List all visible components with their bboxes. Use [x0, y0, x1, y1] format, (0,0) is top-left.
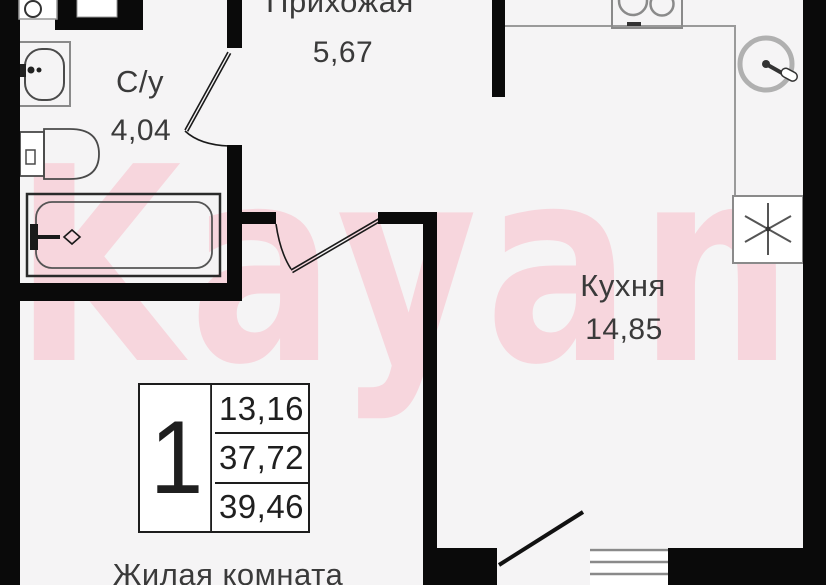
room-area-bathroom: 4,04 — [111, 114, 171, 148]
washing-machine-icon — [19, 0, 57, 19]
room-label-kitchen: Кухня — [580, 268, 665, 304]
bathtub-icon — [27, 194, 220, 276]
wall-segment — [240, 212, 276, 224]
stove-icon — [612, 0, 682, 28]
kitchen-sink-icon — [740, 38, 799, 90]
door-swing-icon — [276, 218, 382, 273]
wall-segment — [423, 212, 437, 585]
door-swing-icon — [185, 52, 231, 146]
wall-segment — [492, 0, 505, 97]
rooms-count: 1 — [143, 385, 212, 531]
wall-segment — [803, 0, 826, 585]
area-values: 13,16 37,72 39,46 — [215, 385, 308, 531]
apartment-area-value: 37,72 — [215, 434, 308, 483]
room-area-kitchen: 14,85 — [585, 313, 663, 347]
room-label-bathroom: С/у — [116, 64, 164, 100]
total-area-value: 39,46 — [215, 484, 308, 531]
refrigerator-marker-icon — [733, 196, 803, 263]
wall-segment — [437, 548, 497, 585]
wall-segment — [227, 0, 242, 48]
wall-segment — [0, 283, 242, 301]
wall-segment — [227, 145, 242, 301]
room-label-hallway: Прихожая — [266, 0, 414, 20]
apartment-info-box: 1 13,16 37,72 39,46 — [138, 383, 310, 533]
toilet-icon — [20, 129, 99, 179]
bathroom-sink-icon — [16, 42, 70, 106]
window-icon — [590, 548, 668, 585]
kitchen-counter — [505, 26, 735, 196]
door-swing-icon — [499, 512, 583, 565]
wall-segment — [668, 548, 803, 585]
floor-plan: Kayan — [0, 0, 828, 585]
room-label-living-room: Жилая комната — [113, 557, 343, 585]
wall-niche — [77, 0, 117, 17]
room-area-hallway: 5,67 — [313, 36, 373, 70]
living-area-value: 13,16 — [215, 385, 308, 434]
